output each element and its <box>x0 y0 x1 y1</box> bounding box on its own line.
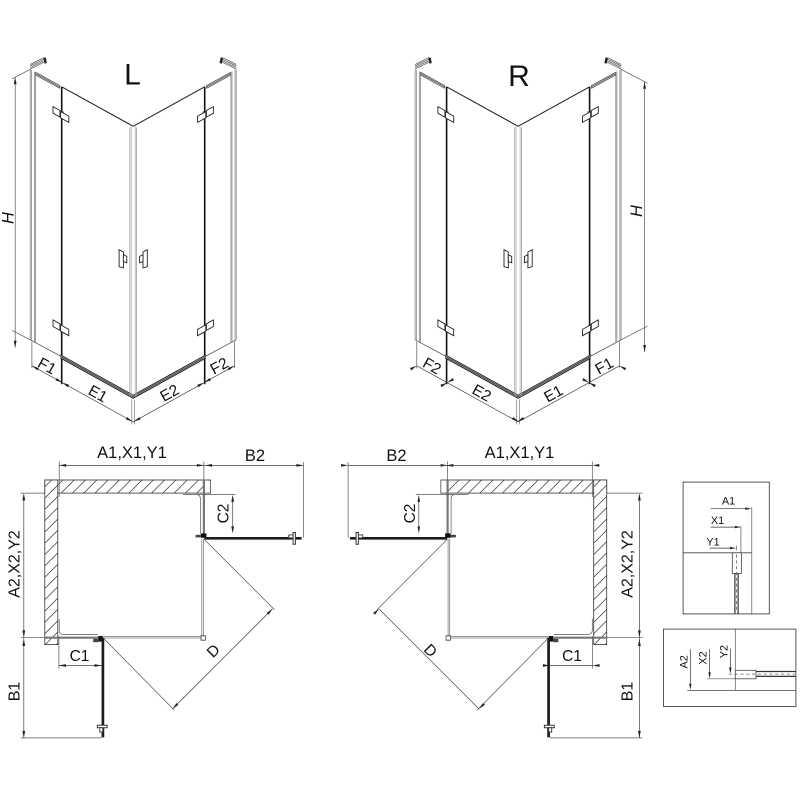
svg-text:Y2: Y2 <box>718 645 730 658</box>
svg-text:X1: X1 <box>711 515 724 527</box>
svg-text:R: R <box>508 60 530 93</box>
svg-text:H: H <box>628 205 646 217</box>
svg-text:C2: C2 <box>216 504 233 524</box>
svg-text:A1: A1 <box>722 495 735 507</box>
svg-text:A2: A2 <box>678 655 690 668</box>
svg-text:A2,X2,Y2: A2,X2,Y2 <box>6 530 23 598</box>
svg-text:B2: B2 <box>386 447 406 465</box>
svg-text:B2: B2 <box>245 447 265 465</box>
svg-text:C2: C2 <box>402 504 419 524</box>
svg-text:B1: B1 <box>620 682 637 702</box>
svg-text:L: L <box>124 59 141 92</box>
svg-text:H: H <box>0 212 18 224</box>
svg-text:C1: C1 <box>70 648 90 665</box>
svg-text:A1,X1,Y1: A1,X1,Y1 <box>485 444 555 462</box>
svg-text:A2,X2,Y2: A2,X2,Y2 <box>620 530 637 598</box>
svg-text:C1: C1 <box>562 648 582 665</box>
svg-text:A1,X1,Y1: A1,X1,Y1 <box>97 444 167 462</box>
svg-text:B1: B1 <box>6 682 23 702</box>
svg-text:Y1: Y1 <box>706 536 719 548</box>
svg-text:X2: X2 <box>698 651 710 664</box>
